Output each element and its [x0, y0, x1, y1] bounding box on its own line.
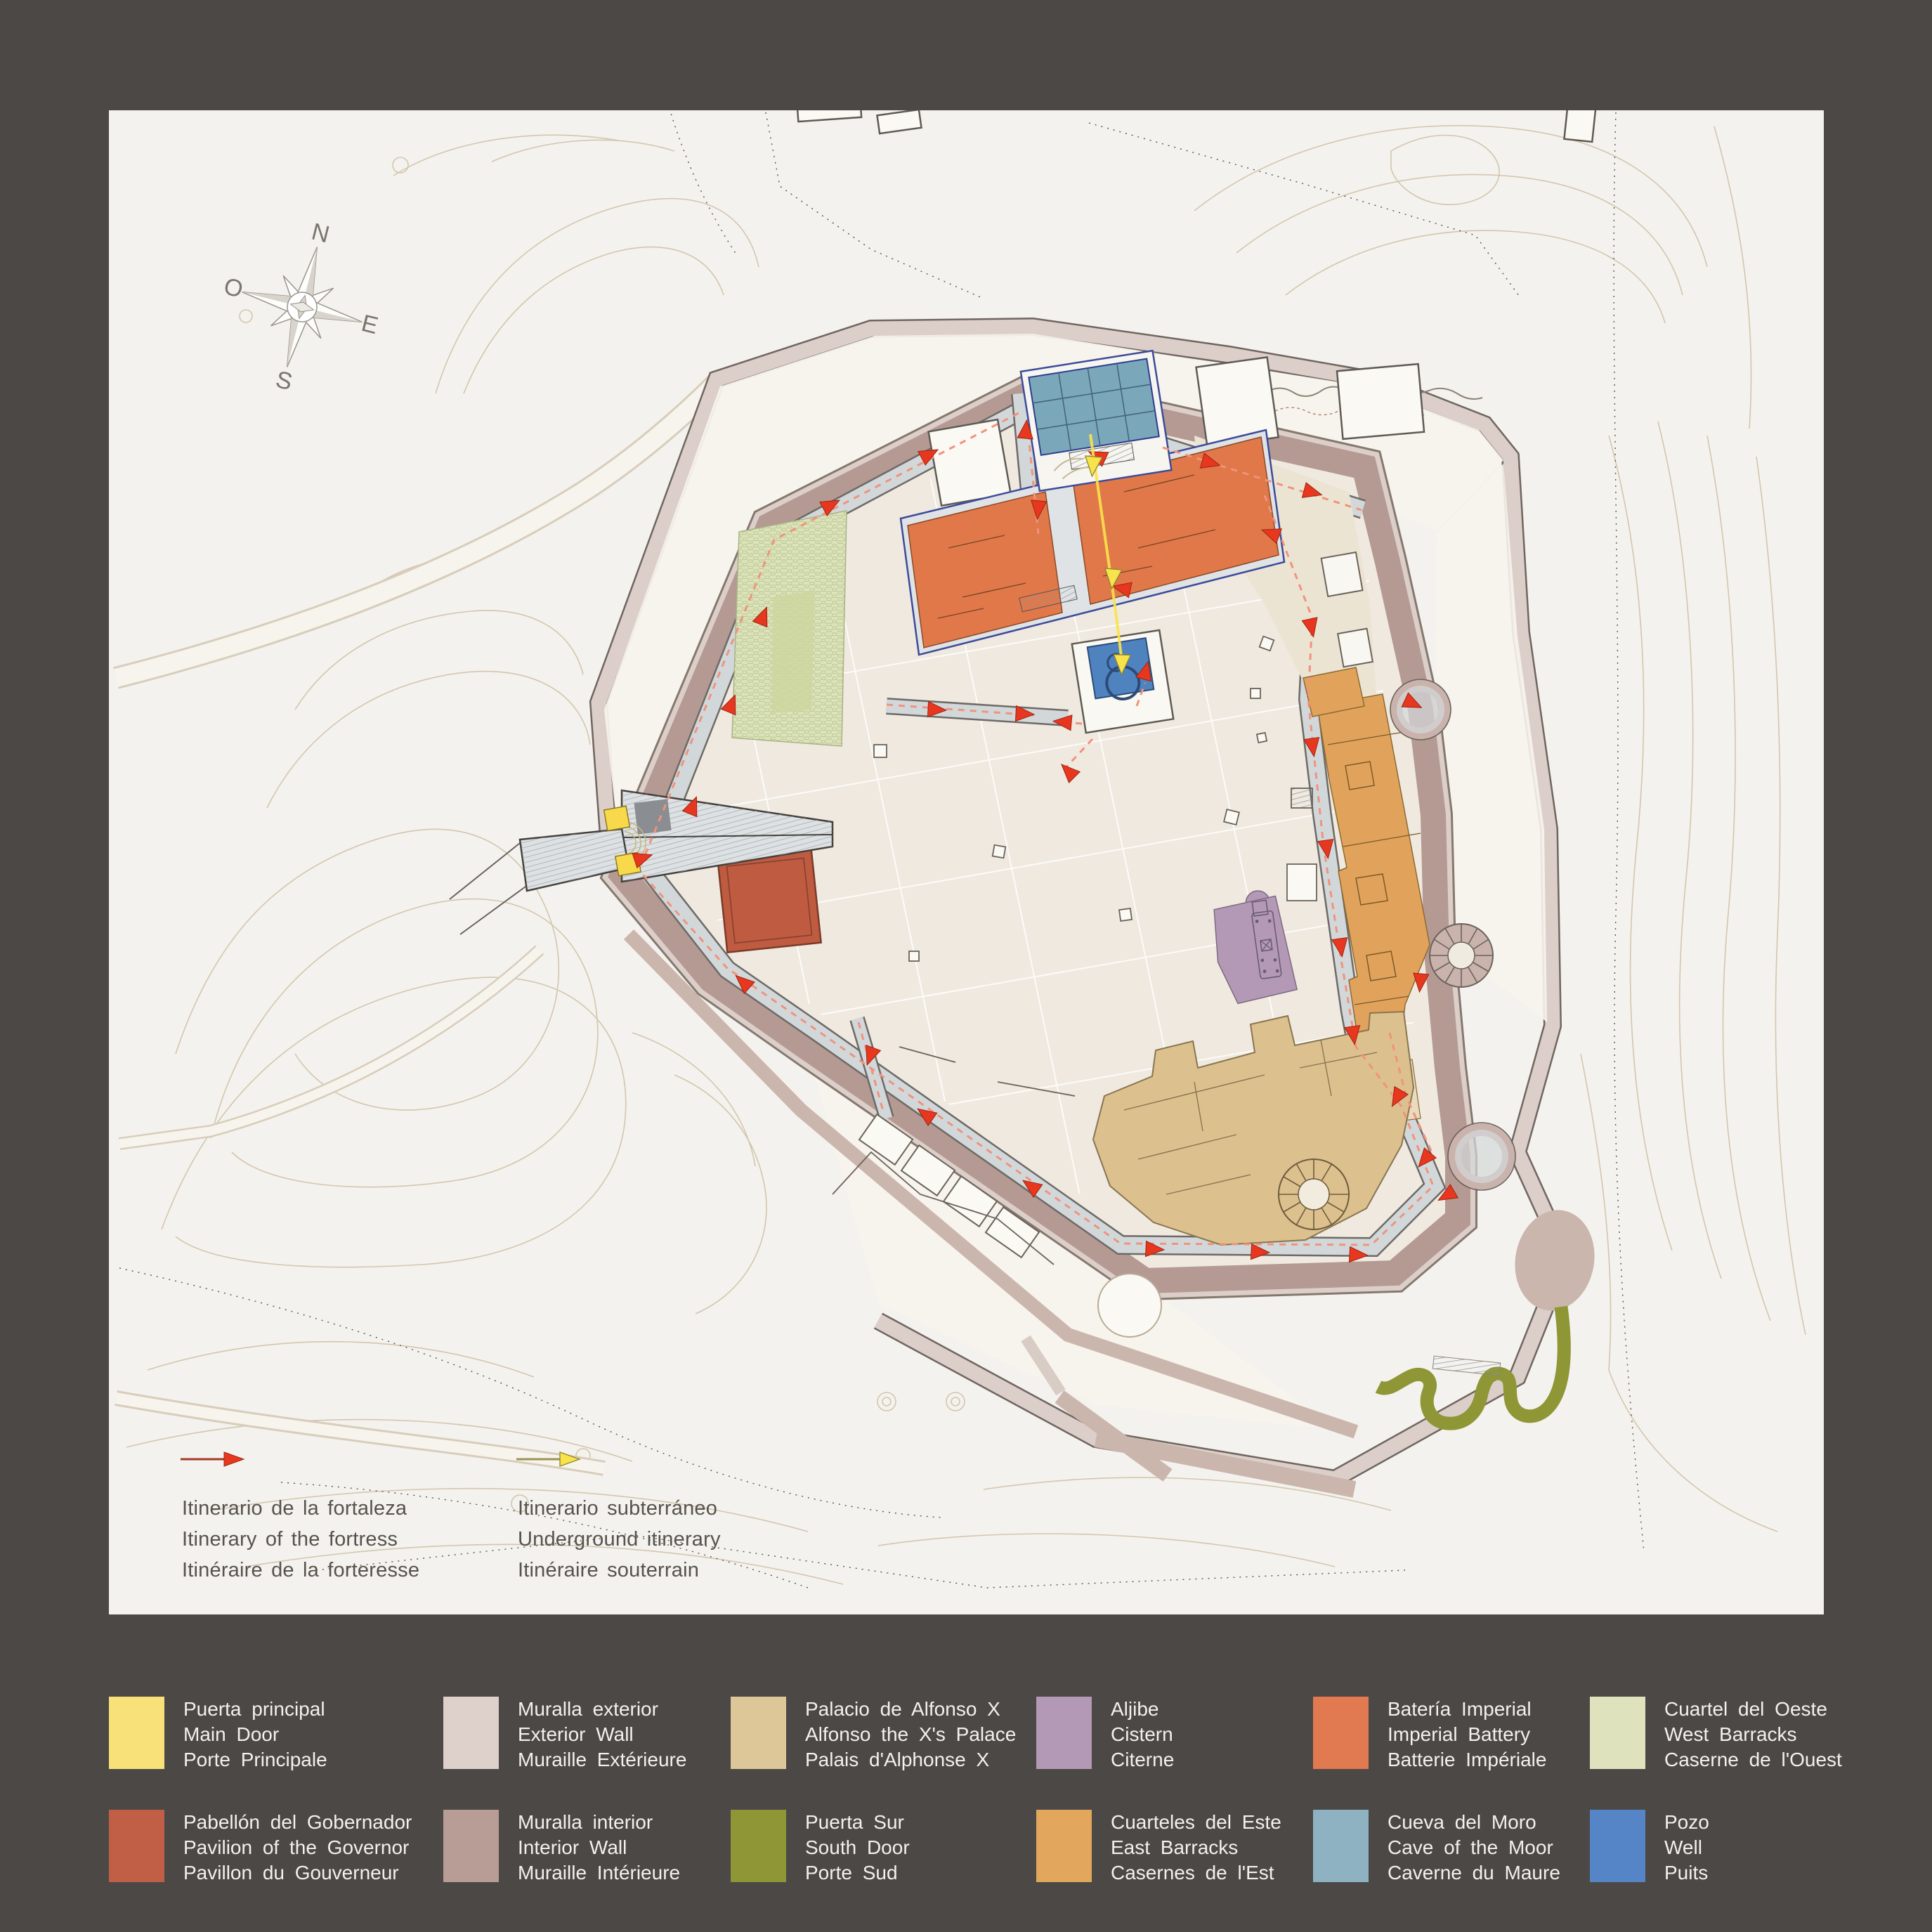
- fortress-route-en: Itinerary of the fortress: [182, 1524, 419, 1555]
- legend-label-fr: Puits: [1664, 1860, 1709, 1886]
- legend-item-pabellon-gobernador: Pabellón del GobernadorPavilion of the G…: [109, 1810, 412, 1886]
- governor-pavilion: [717, 849, 821, 952]
- legend-swatch-muralla-interior: [443, 1810, 499, 1882]
- legend-label-fr: Caserne de l'Ouest: [1664, 1747, 1842, 1773]
- legend-swatch-pabellon-gobernador: [109, 1810, 164, 1882]
- legend-item-cuarteles-este: Cuarteles del EsteEast BarracksCasernes …: [1036, 1810, 1281, 1886]
- legend-swatch-aljibe: [1036, 1697, 1092, 1769]
- fortress-route-fr: Itinéraire de la forteresse: [182, 1555, 419, 1586]
- poster: N E S O Itinerario de la fortaleza Itine…: [0, 0, 1932, 1932]
- well: [1072, 630, 1173, 733]
- legend-label-es: Batería Imperial: [1388, 1697, 1546, 1722]
- legend-label-es: Aljibe: [1111, 1697, 1174, 1722]
- compass-o: O: [221, 273, 246, 303]
- legend-label-en: Exterior Wall: [518, 1722, 686, 1747]
- horseshoe-tower-north: [1390, 679, 1451, 740]
- underground-route-en: Underground itinerary: [518, 1524, 721, 1555]
- legend-label-en: West Barracks: [1664, 1722, 1842, 1747]
- legend-label-en: Cave of the Moor: [1388, 1835, 1560, 1860]
- south-door-stairs: [1432, 1356, 1500, 1376]
- compass-e: E: [359, 310, 381, 339]
- legend-label-es: Muralla exterior: [518, 1697, 686, 1722]
- compass-n: N: [309, 218, 332, 249]
- legend-label-fr: Porte Sud: [805, 1860, 910, 1886]
- legend-label-fr: Batterie Impériale: [1388, 1747, 1546, 1773]
- legend-label-en: Well: [1664, 1835, 1709, 1860]
- legend-label-en: Cistern: [1111, 1722, 1174, 1747]
- legend-label-en: Pavilion of the Governor: [183, 1835, 412, 1860]
- legend-label-es: Palacio de Alfonso X: [805, 1697, 1016, 1722]
- legend-label-fr: Porte Principale: [183, 1747, 327, 1773]
- fortress-route-legend-text: Itinerario de la fortaleza Itinerary of …: [182, 1493, 419, 1586]
- underground-route-es: Itinerario subterráneo: [518, 1493, 721, 1524]
- legend-item-puerta-principal: Puerta principalMain DoorPorte Principal…: [109, 1697, 327, 1773]
- legend-label-fr: Casernes de l'Est: [1111, 1860, 1281, 1886]
- legend-swatch-pozo: [1590, 1810, 1645, 1882]
- legend-label-es: Pabellón del Gobernador: [183, 1810, 412, 1835]
- legend-item-cuartel-oeste: Cuartel del OesteWest BarracksCaserne de…: [1590, 1697, 1842, 1773]
- legend-label-en: Imperial Battery: [1388, 1722, 1546, 1747]
- legend-label-es: Cuartel del Oeste: [1664, 1697, 1842, 1722]
- underground-route-fr: Itinéraire souterrain: [518, 1555, 721, 1586]
- legend-label-en: East Barracks: [1111, 1835, 1281, 1860]
- legend-label-en: Main Door: [183, 1722, 327, 1747]
- legend-item-pozo: PozoWellPuits: [1590, 1810, 1709, 1886]
- access-roads: [116, 383, 717, 1468]
- legend-label-en: Interior Wall: [518, 1835, 680, 1860]
- round-tower: [1430, 924, 1493, 987]
- fortress-map-panel: N E S O Itinerario de la fortaleza Itine…: [109, 110, 1824, 1614]
- legend-item-cueva-moro: Cueva del MoroCave of the MoorCaverne du…: [1313, 1810, 1560, 1886]
- west-barracks-garden-inner: [771, 590, 815, 713]
- main-door-north: [604, 806, 630, 830]
- legend-swatch-palacio-alfonso-x: [731, 1697, 786, 1769]
- fortress-map: N E S O: [109, 110, 1824, 1614]
- legend-label-es: Cueva del Moro: [1388, 1810, 1560, 1835]
- se-bastion-blob: [1507, 1203, 1602, 1317]
- underground-route-legend-text: Itinerario subterráneo Underground itine…: [518, 1493, 721, 1586]
- legend-label-fr: Caverne du Maure: [1388, 1860, 1560, 1886]
- legend-label-es: Cuarteles del Este: [1111, 1810, 1281, 1835]
- legend-item-muralla-exterior: Muralla exteriorExterior WallMuraille Ex…: [443, 1697, 686, 1773]
- legend-swatch-cueva-moro: [1313, 1810, 1369, 1882]
- legend-swatch-puerta-principal: [109, 1697, 164, 1769]
- legend-label-es: Muralla interior: [518, 1810, 680, 1835]
- legend-label-fr: Palais d'Alphonse X: [805, 1747, 1016, 1773]
- legend-label-fr: Citerne: [1111, 1747, 1174, 1773]
- legend-swatch-puerta-sur: [731, 1810, 786, 1882]
- legend-label-en: Alfonso the X's Palace: [805, 1722, 1016, 1747]
- legend-item-palacio-alfonso-x: Palacio de Alfonso XAlfonso the X's Pala…: [731, 1697, 1016, 1773]
- legend-item-muralla-interior: Muralla interiorInterior WallMuraille In…: [443, 1810, 680, 1886]
- legend-item-aljibe: AljibeCisternCiterne: [1036, 1697, 1174, 1773]
- legend-label-es: Pozo: [1664, 1810, 1709, 1835]
- legend-swatch-muralla-exterior: [443, 1697, 499, 1769]
- fortress-route-es: Itinerario de la fortaleza: [182, 1493, 419, 1524]
- legend-label-en: South Door: [805, 1835, 910, 1860]
- legend-swatch-cuartel-oeste: [1590, 1697, 1645, 1769]
- legend-item-bateria-imperial: Batería ImperialImperial BatteryBatterie…: [1313, 1697, 1546, 1773]
- legend-label-fr: Muraille Intérieure: [518, 1860, 680, 1886]
- compass-rose: N E S O: [221, 218, 381, 396]
- legend-label-fr: Muraille Extérieure: [518, 1747, 686, 1773]
- horseshoe-tower-south: [1448, 1123, 1515, 1190]
- legend-swatch-cuarteles-este: [1036, 1810, 1092, 1882]
- compass-s: S: [273, 366, 295, 396]
- legend-item-puerta-sur: Puerta SurSouth DoorPorte Sud: [731, 1810, 910, 1886]
- legend-label-fr: Pavillon du Gouverneur: [183, 1860, 412, 1886]
- legend-swatch-bateria-imperial: [1313, 1697, 1369, 1769]
- legend-label-es: Puerta Sur: [805, 1810, 910, 1835]
- legend-label-es: Puerta principal: [183, 1697, 327, 1722]
